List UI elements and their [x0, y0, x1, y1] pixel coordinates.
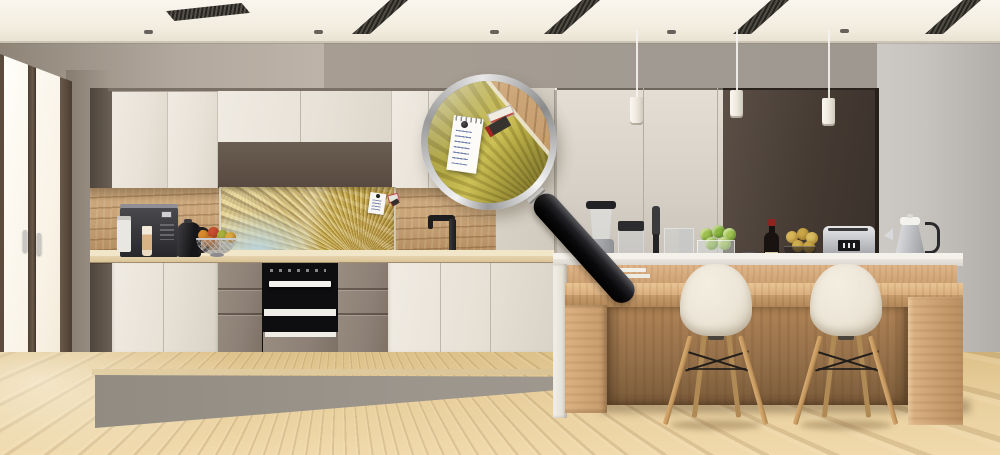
- ceiling: [0, 0, 1000, 43]
- cabinet-seam: [490, 263, 491, 357]
- toaster-slot: [828, 228, 868, 231]
- cabinet-seam: [300, 90, 301, 142]
- chair-shadow: [800, 420, 892, 430]
- kettle-handle: [925, 222, 940, 254]
- drawer-seam: [218, 313, 262, 315]
- food-chopper-motor: [618, 221, 644, 231]
- spotlight: [314, 30, 323, 34]
- spotlight: [840, 29, 849, 33]
- hand-blender: [652, 206, 660, 236]
- bar-leg: [565, 305, 607, 413]
- pendant-light: [730, 90, 743, 118]
- lens-glare: [428, 81, 550, 203]
- chair-leg: [868, 335, 898, 425]
- pendant-light: [630, 97, 643, 125]
- upper-cabinet-door: [218, 90, 392, 142]
- kitchen-scene: [0, 0, 1000, 455]
- milk-tank: [117, 216, 131, 252]
- drawer-seam: [338, 288, 388, 290]
- kettle-lid: [184, 219, 192, 223]
- upper-cabinet-dark: [218, 142, 392, 189]
- kettle-knob: [907, 214, 913, 218]
- chair-shadow: [670, 420, 762, 430]
- note-scribble: [371, 199, 381, 211]
- faucet-nozzle: [428, 219, 433, 229]
- pendant-cord: [736, 30, 738, 90]
- chair-wire-strut: [688, 368, 746, 370]
- coffee-machine-buttons: [160, 224, 174, 240]
- chair-leg: [692, 334, 707, 418]
- oven-handle: [269, 281, 331, 287]
- chair-leg: [822, 334, 837, 418]
- drawer-stack: [338, 263, 388, 358]
- drawer-stack: [218, 263, 262, 358]
- chair-shell: [680, 264, 752, 336]
- window-handle: [37, 233, 41, 255]
- wine-bottle-cap: [768, 219, 776, 226]
- chair-shell: [810, 264, 882, 336]
- eames-chair: [802, 262, 898, 432]
- cabinet-seam: [440, 263, 441, 357]
- kettle-lid: [900, 217, 920, 225]
- spotlight: [667, 30, 676, 34]
- chair-leg: [726, 334, 741, 418]
- cabinet-top-line: [108, 88, 464, 91]
- latte-glass: [142, 226, 152, 256]
- window-handle: [23, 230, 27, 252]
- coffee-machine-display: [161, 211, 172, 218]
- magnifier-lens: [428, 81, 550, 203]
- upper-cabinet-door: [168, 92, 218, 189]
- drawer-seam: [338, 313, 388, 315]
- upper-cabinet-door: [112, 92, 168, 189]
- cabinet-edge: [875, 88, 879, 256]
- eames-chair: [672, 262, 768, 432]
- base-cabinet-door: [388, 263, 558, 357]
- toaster-digits: [843, 243, 855, 248]
- oven-controls: [270, 269, 326, 272]
- blender-lid: [586, 201, 616, 209]
- magnet-pin-icon: [376, 194, 381, 199]
- coffee-machine-top: [120, 204, 178, 208]
- spotlight: [490, 30, 499, 34]
- spotlight: [144, 30, 153, 34]
- ceiling-edge-line: [0, 41, 1000, 44]
- chair-leg: [738, 335, 768, 425]
- pendant-light: [822, 98, 835, 126]
- chair-wire-strut: [818, 368, 876, 370]
- base-cabinet-door: [112, 263, 218, 358]
- bar-leg: [908, 297, 963, 425]
- fruit-bowl-base: [210, 253, 224, 257]
- chair-leg: [856, 334, 871, 418]
- pendant-cord: [828, 30, 830, 98]
- drawer-seam: [218, 288, 262, 290]
- cabinet-seam: [163, 263, 164, 358]
- oven-handle: [264, 309, 336, 316]
- pinned-note: [368, 192, 387, 215]
- oven-drawer-handle: [265, 332, 336, 337]
- pendant-cord: [636, 30, 638, 97]
